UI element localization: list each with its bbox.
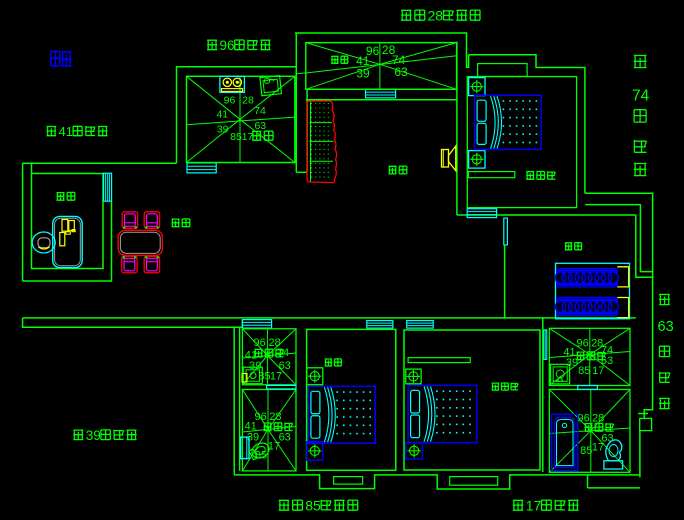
- svg-text:74: 74: [632, 88, 650, 105]
- svg-text:63: 63: [279, 431, 291, 443]
- svg-text:85: 85: [580, 445, 592, 457]
- svg-text:39: 39: [86, 428, 101, 443]
- svg-text:74: 74: [254, 105, 266, 117]
- svg-text:28: 28: [269, 411, 281, 423]
- svg-text:85: 85: [258, 370, 270, 382]
- svg-text:17: 17: [242, 131, 254, 143]
- svg-text:96: 96: [577, 413, 589, 425]
- svg-text:96: 96: [220, 38, 235, 53]
- svg-text:96: 96: [253, 337, 265, 349]
- svg-text:17: 17: [592, 365, 604, 377]
- svg-text:96: 96: [224, 94, 236, 106]
- svg-text:85: 85: [578, 365, 590, 377]
- svg-text:17: 17: [270, 370, 282, 382]
- svg-text:63: 63: [658, 319, 674, 335]
- svg-text:28: 28: [428, 8, 444, 24]
- svg-text:39: 39: [217, 124, 229, 136]
- svg-text:17: 17: [268, 441, 280, 453]
- svg-text:63: 63: [254, 120, 266, 132]
- svg-text:63: 63: [394, 65, 408, 79]
- svg-text:17: 17: [526, 498, 542, 514]
- svg-text:28: 28: [242, 94, 254, 106]
- svg-text:85: 85: [230, 131, 242, 143]
- svg-text:96: 96: [576, 337, 588, 349]
- svg-text:41: 41: [216, 109, 228, 121]
- svg-text:41: 41: [59, 124, 73, 139]
- svg-text:39: 39: [566, 357, 578, 369]
- svg-text:17: 17: [592, 441, 604, 453]
- svg-text:85: 85: [305, 498, 321, 514]
- svg-text:39: 39: [356, 67, 370, 81]
